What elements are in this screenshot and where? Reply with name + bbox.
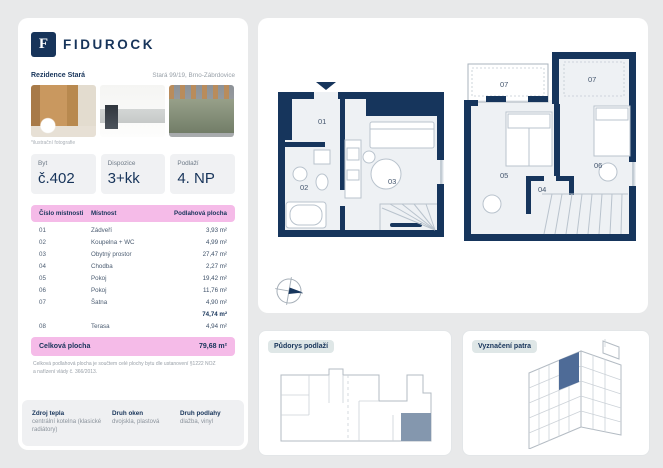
heating-label: Zdroj tepla <box>32 409 106 418</box>
total-area-value: 79,68 m² <box>199 343 227 350</box>
area-footnote: Celková podlahová plocha je součtem celé… <box>33 361 218 377</box>
brand-name: FIDUROCK <box>63 37 155 52</box>
table-row: 03 Obytný prostor 27,47 m² <box>31 246 235 258</box>
brand-logo: F FIDUROCK <box>31 32 235 57</box>
rooms-table: Číslo místnosti Místnost Podlahová ploch… <box>31 205 235 330</box>
windows-label: Druh oken <box>112 409 174 418</box>
floorplan-lower-level: 01 02 03 <box>270 82 452 246</box>
highlighted-floor <box>559 352 579 390</box>
photo-strip <box>31 85 235 137</box>
room-area: 2,27 m² <box>173 263 227 270</box>
kitchen-photo <box>100 85 165 137</box>
summary-floor-value: 4. NP <box>177 170 228 187</box>
room-label-06: 06 <box>594 161 602 170</box>
room-no: 02 <box>39 239 91 246</box>
room-name: Pokoj <box>91 275 173 282</box>
floorplan-upper-level: 07 07 05 06 04 <box>456 52 638 252</box>
heating-detail: Zdroj tepla centrální kotelna (klasické … <box>32 409 106 436</box>
summary-unit-value: č.402 <box>38 170 89 187</box>
windows-value: dvojskla, plastová <box>112 418 174 427</box>
room-no: 03 <box>39 251 91 258</box>
header-room-area: Podlahová plocha <box>173 210 227 217</box>
room-area: 27,47 m² <box>173 251 227 258</box>
floor-outline-drawing <box>273 363 437 447</box>
project-header: Rezidence Stará Stará 99/19, Brno-Zábrdo… <box>31 72 235 79</box>
table-row: 02 Koupelna + WC 4,99 m² <box>31 234 235 246</box>
subtotal-value: 74,74 m² <box>173 311 227 318</box>
summary-layout-value: 3+kk <box>108 170 159 187</box>
highlighted-unit <box>401 413 431 441</box>
summary-boxes: Byt č.402 Dispozice 3+kk Podlaží 4. NP <box>31 154 235 194</box>
compass-icon <box>272 274 306 308</box>
fidurock-logo-icon: F <box>31 32 56 57</box>
rooms-table-header: Číslo místnosti Místnost Podlahová ploch… <box>31 205 235 222</box>
room-area: 11,76 m² <box>173 287 227 294</box>
summary-layout-label: Dispozice <box>108 160 159 167</box>
room-no: 08 <box>39 323 91 330</box>
room-name: Zádveří <box>91 227 173 234</box>
header-room-name: Místnost <box>91 210 173 217</box>
bathroom-photo <box>31 85 96 137</box>
room-label-01: 01 <box>318 117 326 126</box>
summary-layout: Dispozice 3+kk <box>101 154 166 194</box>
project-name: Rezidence Stará <box>31 72 85 79</box>
room-name: Obytný prostor <box>91 251 173 258</box>
windows-detail: Druh oken dvojskla, plastová <box>112 409 174 436</box>
summary-unit-label: Byt <box>38 160 89 167</box>
floor-marking-panel: Vyznačení patra <box>462 330 650 456</box>
room-name: Pokoj <box>91 287 173 294</box>
room-name: Koupelna + WC <box>91 239 173 246</box>
room-area: 4,90 m² <box>173 299 227 306</box>
room-name: Šatna <box>91 299 173 306</box>
flooring-value: dlažba, vinyl <box>180 418 234 427</box>
project-address: Stará 99/19, Brno-Zábrdovice <box>152 72 235 79</box>
table-row: 07 Šatna 4,90 m² <box>31 294 235 306</box>
room-no: 01 <box>39 227 91 234</box>
floor-outline-panel: Půdorys podlaží <box>258 330 452 456</box>
room-no: 06 <box>39 287 91 294</box>
apartment-info-card: F FIDUROCK Rezidence Stará Stará 99/19, … <box>18 18 248 450</box>
room-area: 4,99 m² <box>173 239 227 246</box>
terrace-photo <box>169 85 234 137</box>
floor-outline-title: Půdorys podlaží <box>268 340 334 353</box>
floorplan-card: 01 02 03 <box>258 18 648 313</box>
room-no: 05 <box>39 275 91 282</box>
room-label-07a: 07 <box>500 80 508 89</box>
room-label-04: 04 <box>538 185 546 194</box>
summary-floor-label: Podlaží <box>177 160 228 167</box>
subtotal-row: 74,74 m² <box>31 306 235 318</box>
table-row-terrace: 08 Terasa 4,94 m² <box>31 318 235 330</box>
table-row: 05 Pokoj 19,42 m² <box>31 270 235 282</box>
photo-caption: *ilustrační fotografie <box>31 140 235 146</box>
room-area: 4,94 m² <box>173 323 227 330</box>
total-area-bar: Celková plocha 79,68 m² <box>31 337 235 356</box>
heating-value: centrální kotelna (klasické radiátory) <box>32 418 106 435</box>
room-area: 19,42 m² <box>173 275 227 282</box>
room-label-07b: 07 <box>588 75 596 84</box>
summary-floor: Podlaží 4. NP <box>170 154 235 194</box>
room-no: 07 <box>39 299 91 306</box>
room-label-05: 05 <box>500 171 508 180</box>
header-room-number: Číslo místnosti <box>39 210 91 217</box>
room-no: 04 <box>39 263 91 270</box>
building-axonometric-drawing <box>517 337 641 449</box>
entrance-arrow-icon <box>316 82 336 90</box>
flooring-detail: Druh podlahy dlažba, vinyl <box>180 409 234 436</box>
room-label-03: 03 <box>388 177 396 186</box>
table-row: 01 Zádveří 3,93 m² <box>31 222 235 234</box>
room-area: 3,93 m² <box>173 227 227 234</box>
room-name: Terasa <box>91 323 173 330</box>
room-name: Chodba <box>91 263 173 270</box>
unit-details-footer: Zdroj tepla centrální kotelna (klasické … <box>22 400 244 447</box>
table-row: 04 Chodba 2,27 m² <box>31 258 235 270</box>
summary-unit: Byt č.402 <box>31 154 96 194</box>
room-label-02: 02 <box>300 183 308 192</box>
table-row: 06 Pokoj 11,76 m² <box>31 282 235 294</box>
flooring-label: Druh podlahy <box>180 409 234 418</box>
total-area-label: Celková plocha <box>39 343 90 350</box>
